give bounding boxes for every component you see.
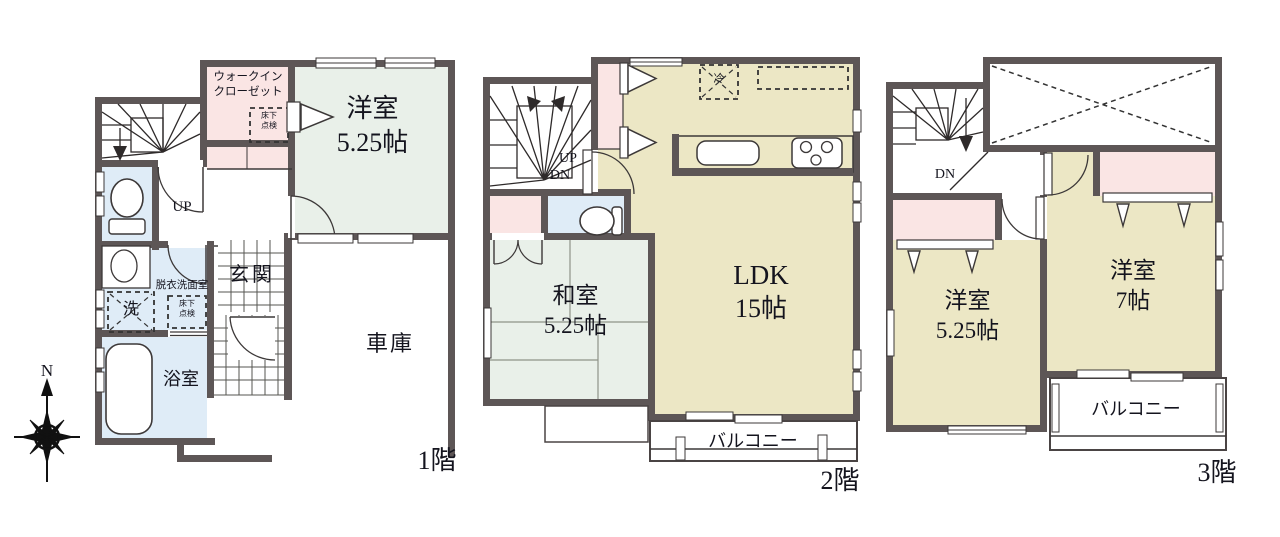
western-room-1f-label: 洋室	[310, 92, 435, 126]
ldk-label: LDK	[700, 258, 822, 293]
western-room-large-size: 7帖	[1072, 286, 1194, 316]
refrigerator-label: 冷	[702, 72, 736, 86]
floor3-closet-left	[893, 200, 995, 240]
floor3-label: 3階	[1185, 456, 1249, 490]
stairs-up-label-1f: UP	[160, 198, 204, 218]
floor2-toilet-fixture	[580, 207, 622, 235]
balcony-label-2f: バルコニー	[680, 430, 826, 453]
floor3-void	[992, 66, 1213, 143]
floor3-closet-right	[1100, 152, 1215, 196]
stairs-down-arrow-3f	[959, 136, 973, 152]
walk-in-closet-label: ウォークイン クローゼット	[206, 70, 290, 100]
japanese-room-label: 和室	[518, 281, 633, 311]
floorplan-canvas: ウォークイン クローゼット 床下 点検 洋室 5.25帖 UP 玄関 脱衣洗面室…	[0, 0, 1280, 537]
western-room-small-size: 5.25帖	[905, 316, 1030, 346]
japanese-room-size: 5.25帖	[518, 311, 633, 341]
floor2-pantry	[598, 64, 623, 149]
compass-north-label: N	[35, 360, 59, 382]
western-room-small-label: 洋室	[905, 286, 1030, 316]
entrance-label: 玄関	[222, 262, 282, 288]
bathroom-label: 浴室	[152, 368, 210, 391]
floor2-label: 2階	[808, 464, 872, 498]
western-room-1f-size: 5.25帖	[310, 126, 435, 160]
ldk-size: 15帖	[700, 292, 822, 326]
kitchen-sink	[697, 141, 759, 165]
floor3-plan	[886, 57, 1226, 450]
toilet-icon	[109, 219, 145, 234]
toilet-icon-2f	[580, 207, 614, 235]
western-room-large-label: 洋室	[1072, 256, 1194, 286]
floor2-eave	[545, 406, 648, 442]
floor1-stairs	[102, 104, 200, 161]
stairs-down-arrow	[113, 146, 127, 161]
garage-label: 車庫	[352, 330, 428, 359]
washing-machine-label: 洗	[108, 300, 154, 321]
balcony-label-3f: バルコニー	[1063, 398, 1209, 421]
underfloor-hatch-label-wic: 床下 点検	[250, 111, 288, 131]
stairs-up-label-2f: UP	[548, 150, 588, 168]
compass-rose	[14, 378, 80, 482]
stairs-down-label-2f: DN	[540, 167, 580, 185]
underfloor-hatch-label: 床下 点検	[168, 299, 206, 319]
washroom-label: 脱衣洗面室	[146, 279, 218, 293]
bathtub-icon	[106, 344, 152, 434]
floor1-label: 1階	[405, 444, 469, 478]
floor2-closet-cell	[490, 196, 541, 233]
floor1-closet-cells	[207, 147, 292, 169]
stairs-down-label-3f: DN	[925, 166, 965, 184]
